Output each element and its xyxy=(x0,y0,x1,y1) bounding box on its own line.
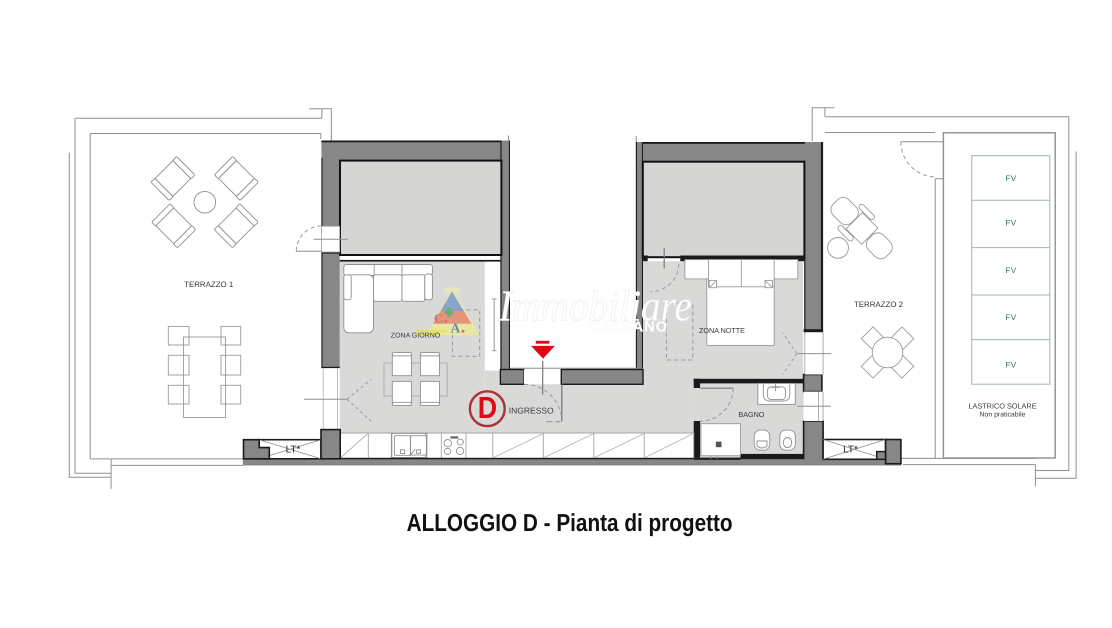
svg-text:FV: FV xyxy=(1005,174,1016,183)
svg-text:Non praticabile: Non praticabile xyxy=(980,412,1026,419)
svg-text:BAGNO: BAGNO xyxy=(738,410,764,419)
svg-text:TERRAZZO 1: TERRAZZO 1 xyxy=(184,280,233,289)
svg-text:FV: FV xyxy=(1005,218,1016,227)
svg-text:LT*: LT* xyxy=(843,444,858,455)
svg-text:TERRAZZO 2: TERRAZZO 2 xyxy=(854,300,903,309)
svg-text:FV: FV xyxy=(1005,313,1016,322)
svg-text:FV: FV xyxy=(1005,266,1016,275)
svg-text:LASTRICO SOLARE: LASTRICO SOLARE xyxy=(968,402,1036,411)
svg-text:INGRESSO: INGRESSO xyxy=(509,406,554,416)
svg-text:CASSANO: CASSANO xyxy=(588,320,668,336)
svg-text:LT*: LT* xyxy=(286,444,301,455)
svg-text:C: C xyxy=(434,312,443,326)
svg-text:ZONA GIORNO: ZONA GIORNO xyxy=(391,332,441,339)
svg-text:ALLOGGIO D - Pianta di progett: ALLOGGIO D - Pianta di progetto xyxy=(407,510,733,537)
svg-text:FV: FV xyxy=(1005,361,1016,370)
svg-text:ZONA NOTTE: ZONA NOTTE xyxy=(699,326,745,335)
svg-text:A: A xyxy=(451,321,461,336)
svg-text:D: D xyxy=(478,391,497,425)
